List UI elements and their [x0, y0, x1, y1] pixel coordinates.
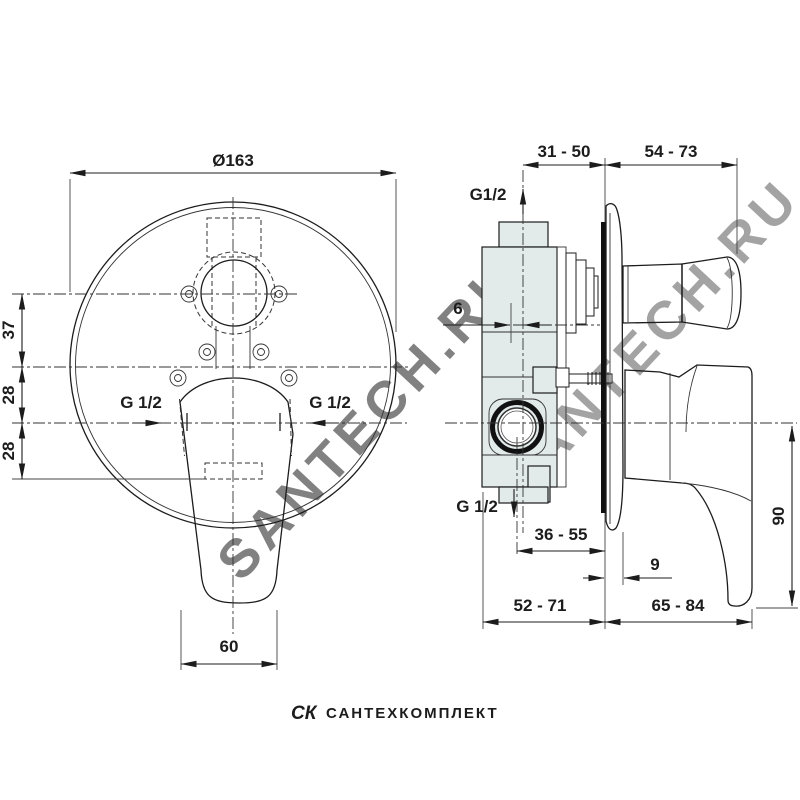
- wall-line: [601, 222, 606, 513]
- dim-28a-label: 28: [0, 386, 18, 405]
- dim-37-label: 37: [0, 321, 18, 340]
- port-right-label: G 1/2: [309, 393, 351, 412]
- dim-52-71-label: 52 - 71: [514, 596, 567, 615]
- port-left-label: G 1/2: [120, 393, 162, 412]
- port-bottom-label: G 1/2: [456, 497, 498, 516]
- dim-54-73-label: 54 - 73: [645, 142, 698, 161]
- dim-36-55-label: 36 - 55: [535, 525, 588, 544]
- dim-9-label: 9: [650, 555, 659, 574]
- dim-90-label: 90: [769, 507, 788, 526]
- dim-65-84-label: 65 - 84: [652, 596, 705, 615]
- dim-31-50-label: 31 - 50: [538, 142, 591, 161]
- dim-6-label: 6: [453, 299, 462, 318]
- valve-body: [482, 222, 557, 503]
- footer-logo: СК: [291, 703, 318, 724]
- footer-text: САНТЕХКОМПЛЕКТ: [326, 705, 499, 722]
- dim-28b-label: 28: [0, 442, 18, 461]
- dim-60-label: 60: [220, 637, 239, 656]
- mixer-valve-drawing: SANTECH.RU SANTECH.RU СК САНТЕХКОМПЛЕКТ: [0, 0, 800, 800]
- port-top-label: G1/2: [470, 185, 507, 204]
- technical-drawing-page: SANTECH.RU SANTECH.RU СК САНТЕХКОМПЛЕКТ: [0, 0, 800, 800]
- dim-diameter-label: Ø163: [212, 151, 254, 170]
